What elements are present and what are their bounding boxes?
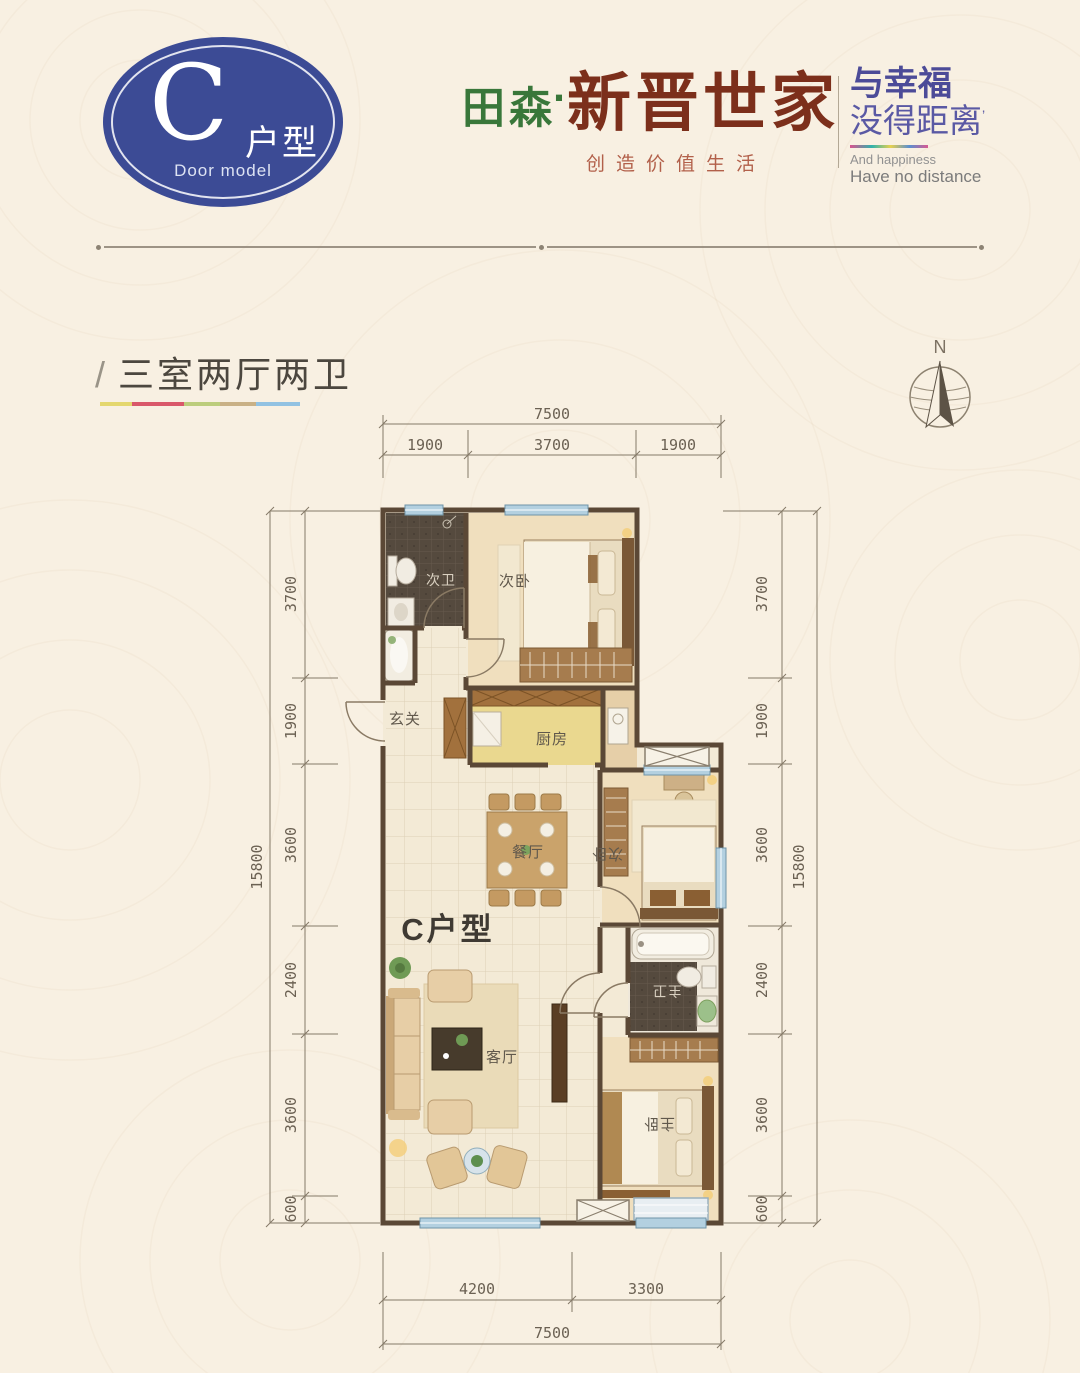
dim-left-seg-4: 3600 — [282, 1097, 300, 1133]
dim-top-seg-1: 3700 — [534, 436, 570, 454]
dim-right-seg-3: 2400 — [753, 962, 771, 998]
dim-top-seg-0: 1900 — [407, 436, 443, 454]
divider-line-right — [547, 246, 977, 248]
room-label-living: 客厅 — [486, 1049, 518, 1066]
badge-subtitle: Door model — [103, 161, 343, 181]
ac-platform-bottom — [577, 1200, 629, 1221]
type-badge: C 户型 Door model — [103, 37, 343, 207]
room-label-master-bedroom: 主卧 — [643, 1115, 675, 1132]
tagline-line2: 没得距离’ — [850, 103, 1070, 139]
header-vertical-divider — [838, 76, 839, 168]
dim-bottom-total: 7500 — [534, 1324, 570, 1342]
dim-left-total: 15800 — [248, 844, 266, 889]
ac-platform-top — [645, 747, 709, 766]
tagline-en-line1: And happiness — [850, 152, 1070, 167]
section-title: /三室两厅两卫 — [95, 346, 352, 398]
badge-type-label: 户型 — [245, 115, 319, 166]
divider-line-left — [104, 246, 536, 248]
entry-door — [346, 702, 385, 741]
plan-type-label: C户型 — [401, 912, 494, 947]
section-title-text: 三室两厅两卫 — [118, 354, 352, 395]
divider-dot-right — [979, 245, 984, 250]
master-closet — [630, 1038, 718, 1062]
dim-right-seg-5: 600 — [753, 1195, 771, 1222]
compass: N — [893, 333, 988, 443]
dim-right-seg-4: 3600 — [753, 1097, 771, 1133]
compass-needle-dark — [940, 361, 954, 427]
tagline-block: 与幸福 没得距离’ And happiness Have no distance — [850, 66, 1070, 187]
room-label-dining: 餐厅 — [512, 844, 544, 861]
room-label-entry: 玄关 — [389, 711, 421, 728]
dim-left-seg-0: 3700 — [282, 576, 300, 612]
brand-name: 田森 — [462, 74, 556, 136]
tagline-mark: ’ — [982, 107, 985, 123]
dim-left-seg-1: 1900 — [282, 703, 300, 739]
section-slash: / — [95, 354, 108, 395]
badge-letter: C — [149, 51, 229, 155]
tagline-line2-text: 没得距离 — [850, 102, 982, 139]
room-label-bedroom-top: 次卧 — [499, 573, 531, 590]
dim-left-seg-2: 3600 — [282, 827, 300, 863]
window-right-wall — [716, 848, 726, 908]
dim-right-seg-1: 1900 — [753, 703, 771, 739]
room-label-second-bath: 次卫 — [426, 572, 456, 588]
room-label-kitchen: 厨房 — [536, 731, 568, 748]
dim-right-seg-2: 3600 — [753, 827, 771, 863]
poster-page: C 户型 Door model 田森 · 新晋世家 创造价值生活 与幸福 没得距… — [0, 0, 1080, 1373]
divider-dot-middle — [539, 245, 544, 250]
brand-title: 新晋世家 — [567, 52, 839, 144]
compass-needle-light — [926, 361, 940, 427]
tagline-en-line2: Have no distance — [850, 167, 1070, 187]
bedroom-top-furniture — [498, 528, 634, 682]
compass-north-label: N — [934, 337, 947, 357]
dim-left-seg-3: 2400 — [282, 962, 300, 998]
divider-dot-left — [96, 245, 101, 250]
brand-slogan: 创造价值生活 — [586, 149, 766, 176]
floor-plan: 次卫 次卧 玄关 厨房 餐厅 次卧 C户型 主卫 客厅 主卧 — [240, 395, 830, 1373]
window-living-bottom — [420, 1218, 540, 1228]
window-top-bedroom — [505, 505, 588, 515]
dim-top-total: 7500 — [534, 405, 570, 423]
dim-right-total: 15800 — [790, 844, 808, 889]
window-master-bay — [634, 1198, 708, 1228]
dim-right-seg-0: 3700 — [753, 576, 771, 612]
tagline-line1: 与幸福 — [850, 66, 1070, 103]
room-label-bedroom-right: 次卧 — [591, 845, 623, 862]
tagline-rainbow-line — [850, 145, 928, 148]
dim-left-seg-5: 600 — [282, 1195, 300, 1222]
entry-bathtub — [385, 630, 414, 681]
room-label-master-bath: 主卫 — [652, 983, 682, 999]
dim-bottom-seg-1: 3300 — [628, 1280, 664, 1298]
dim-top-seg-2: 1900 — [660, 436, 696, 454]
brand-separator: · — [553, 74, 567, 123]
master-bedroom-furniture — [600, 1076, 714, 1200]
dim-bottom-seg-0: 4200 — [459, 1280, 495, 1298]
window-top-bath — [405, 505, 443, 515]
